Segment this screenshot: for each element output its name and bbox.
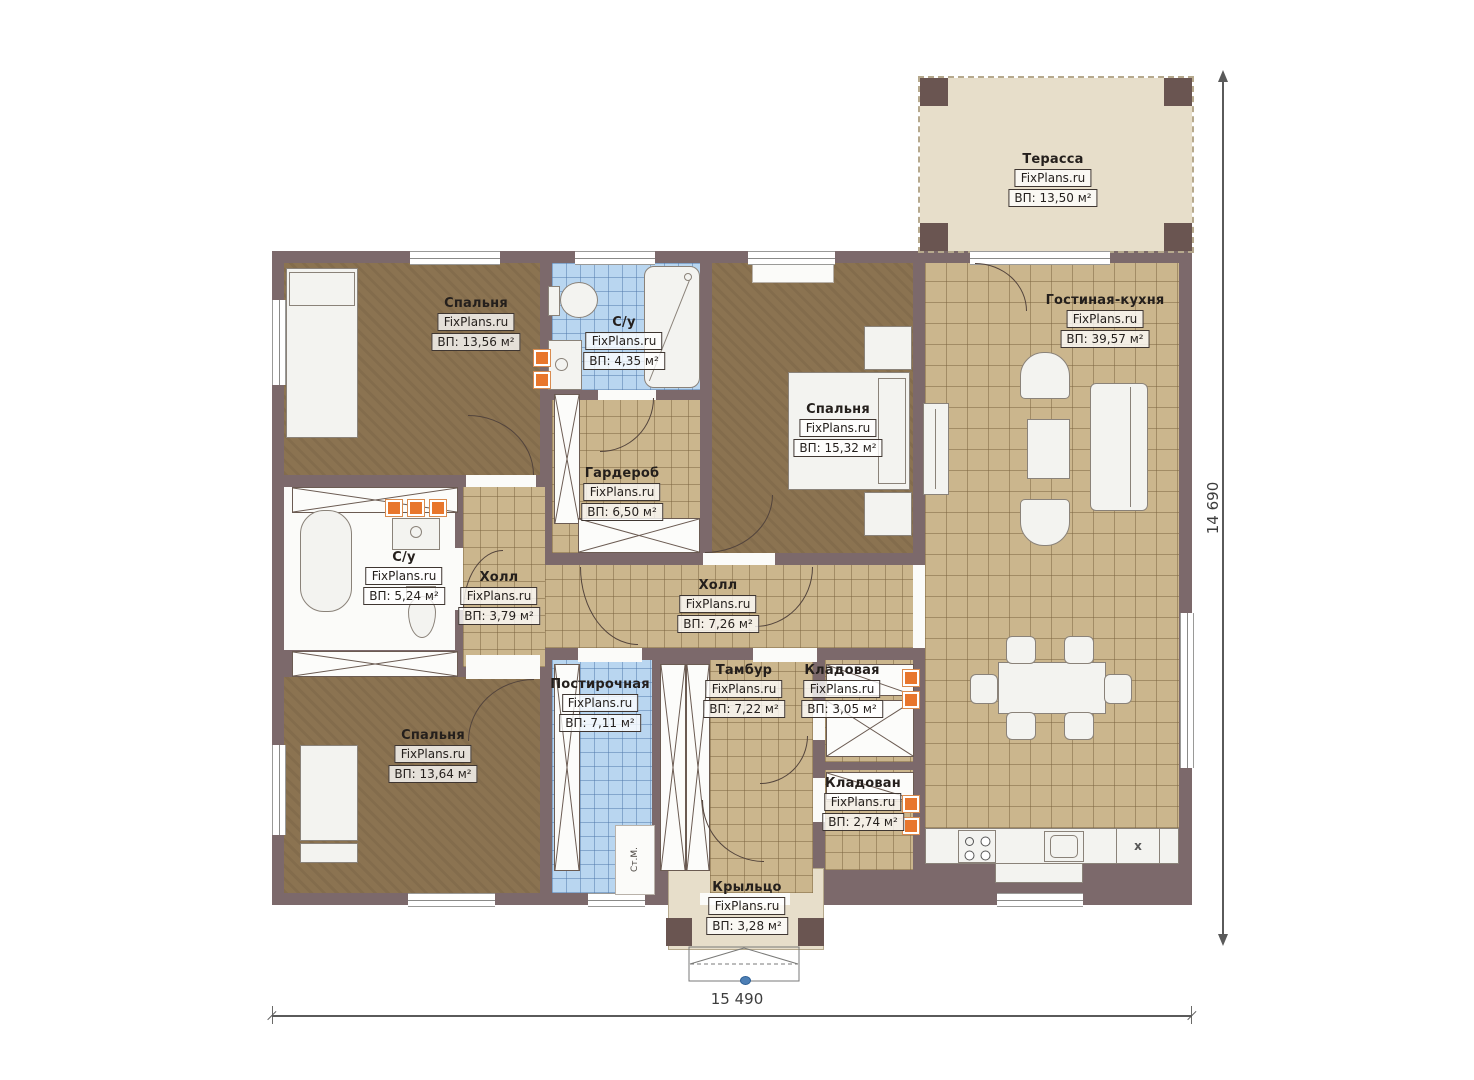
door-opening bbox=[703, 553, 775, 565]
vent-marker bbox=[408, 500, 424, 516]
room-label-terrace: Терасса FixPlans.ru ВП: 13,50 м² bbox=[1008, 152, 1097, 207]
watermark: FixPlans.ru bbox=[800, 419, 877, 437]
dimension-line-right bbox=[1222, 76, 1224, 940]
room-name: Спальня bbox=[431, 296, 520, 311]
toilet-tank bbox=[548, 286, 560, 316]
washbasin-drain bbox=[555, 358, 568, 371]
door-opening bbox=[913, 565, 925, 648]
room-area: ВП: 3,79 м² bbox=[458, 607, 540, 625]
porch-pillar bbox=[666, 918, 692, 946]
closet bbox=[660, 664, 686, 871]
stove bbox=[958, 830, 996, 863]
watermark: FixPlans.ru bbox=[825, 793, 902, 811]
room-area: ВП: 3,05 м² bbox=[801, 700, 883, 718]
room-name: Спальня bbox=[388, 728, 477, 743]
tv-stand bbox=[923, 403, 949, 495]
window bbox=[272, 745, 286, 835]
room-area: ВП: 2,74 м² bbox=[822, 813, 904, 831]
bed-foot bbox=[300, 843, 358, 863]
coffee-table bbox=[1027, 419, 1070, 479]
watermark: FixPlans.ru bbox=[1015, 169, 1092, 187]
chair bbox=[970, 674, 998, 704]
room-label-hall-small: Холл FixPlans.ru ВП: 3,79 м² bbox=[458, 570, 540, 625]
terrace-pillar bbox=[920, 223, 948, 251]
room-label-bedroom-bl: Спальня FixPlans.ru ВП: 13,64 м² bbox=[388, 728, 477, 783]
watermark: FixPlans.ru bbox=[562, 694, 639, 712]
room-area: ВП: 6,50 м² bbox=[581, 503, 663, 521]
armchair bbox=[1020, 499, 1070, 546]
terrace-sliding-door bbox=[970, 251, 1110, 265]
closet bbox=[292, 651, 458, 677]
washing-machine: Ст.М. bbox=[615, 825, 655, 895]
room-name: Гостиная-кухня bbox=[1046, 293, 1165, 308]
vent-marker bbox=[534, 372, 550, 388]
room-name: С/у bbox=[583, 315, 665, 330]
room-name: С/у bbox=[363, 550, 445, 565]
sink-basin bbox=[1050, 835, 1078, 858]
dining-table bbox=[998, 662, 1106, 714]
watermark: FixPlans.ru bbox=[804, 680, 881, 698]
watermark: FixPlans.ru bbox=[461, 587, 538, 605]
room-name: Терасса bbox=[1008, 152, 1097, 167]
counter-extension bbox=[995, 863, 1083, 883]
window bbox=[408, 893, 495, 907]
room-label-storage-2: Кладован FixPlans.ru ВП: 2,74 м² bbox=[822, 776, 904, 831]
door-opening bbox=[753, 648, 817, 662]
room-name: Гардероб bbox=[581, 466, 663, 481]
dimension-line-bottom bbox=[272, 1015, 1192, 1017]
room-area: ВП: 4,35 м² bbox=[583, 352, 665, 370]
watermark: FixPlans.ru bbox=[395, 745, 472, 763]
watermark: FixPlans.ru bbox=[709, 897, 786, 915]
door-opening bbox=[578, 648, 642, 662]
porch-pillar bbox=[798, 918, 824, 946]
room-area: ВП: 7,26 м² bbox=[677, 615, 759, 633]
watermark: FixPlans.ru bbox=[680, 595, 757, 613]
washbasin-drain bbox=[410, 526, 422, 538]
vent-marker bbox=[430, 500, 446, 516]
vent-marker bbox=[386, 500, 402, 516]
watermark: FixPlans.ru bbox=[366, 567, 443, 585]
fridge: x bbox=[1116, 828, 1160, 864]
room-label-hall-main: Холл FixPlans.ru ВП: 7,26 м² bbox=[677, 578, 759, 633]
dimension-arrow bbox=[1218, 70, 1228, 82]
room-name: Тамбур bbox=[703, 663, 785, 678]
room-label-bedroom-tl: Спальня FixPlans.ru ВП: 13,56 м² bbox=[431, 296, 520, 351]
window bbox=[410, 251, 500, 265]
window bbox=[1180, 613, 1194, 768]
chair bbox=[1064, 636, 1094, 664]
watermark: FixPlans.ru bbox=[586, 332, 663, 350]
fridge-label: x bbox=[1134, 839, 1142, 853]
terrace-pillar bbox=[1164, 223, 1192, 251]
vent-marker bbox=[903, 692, 919, 708]
washing-machine-label: Ст.М. bbox=[630, 847, 640, 872]
watermark: FixPlans.ru bbox=[584, 483, 661, 501]
room-area: ВП: 3,28 м² bbox=[706, 917, 788, 935]
room-label-laundry: Постирочная FixPlans.ru ВП: 7,11 м² bbox=[550, 677, 650, 732]
room-name: Кладован bbox=[822, 776, 904, 791]
room-label-porch: Крыльцо FixPlans.ru ВП: 3,28 м² bbox=[706, 880, 788, 935]
dimension-width: 15 490 bbox=[711, 990, 764, 1008]
armchair bbox=[1020, 352, 1070, 399]
room-name: Холл bbox=[677, 578, 759, 593]
room-label-wardrobe: Гардероб FixPlans.ru ВП: 6,50 м² bbox=[581, 466, 663, 521]
room-label-bath-left: С/у FixPlans.ru ВП: 5,24 м² bbox=[363, 550, 445, 605]
room-area: ВП: 13,56 м² bbox=[431, 333, 520, 351]
dimension-height: 14 690 bbox=[1204, 482, 1222, 535]
terrace-pillar bbox=[920, 78, 948, 106]
drain bbox=[684, 273, 692, 281]
window bbox=[748, 251, 835, 265]
nightstand bbox=[864, 326, 912, 370]
vent-marker bbox=[903, 796, 919, 812]
bed-pillow bbox=[289, 272, 355, 306]
chair bbox=[1006, 636, 1036, 664]
room-area: ВП: 15,32 м² bbox=[793, 439, 882, 457]
room-area: ВП: 39,57 м² bbox=[1060, 330, 1149, 348]
sofa bbox=[1090, 383, 1148, 511]
closet bbox=[554, 394, 580, 524]
terrace-pillar bbox=[1164, 78, 1192, 106]
window bbox=[588, 893, 645, 907]
window bbox=[272, 300, 286, 385]
room-area: ВП: 7,11 м² bbox=[559, 714, 641, 732]
chair bbox=[1006, 712, 1036, 740]
watermark: FixPlans.ru bbox=[438, 313, 515, 331]
vent-marker bbox=[903, 670, 919, 686]
bathtub bbox=[300, 510, 352, 612]
nightstand bbox=[864, 492, 912, 536]
dimension-arrow bbox=[1218, 934, 1228, 946]
door-opening bbox=[466, 475, 536, 487]
room-area: ВП: 13,50 м² bbox=[1008, 189, 1097, 207]
watermark: FixPlans.ru bbox=[1067, 310, 1144, 328]
room-name: Крыльцо bbox=[706, 880, 788, 895]
chair bbox=[1104, 674, 1132, 704]
watermark: FixPlans.ru bbox=[706, 680, 783, 698]
room-area: ВП: 5,24 м² bbox=[363, 587, 445, 605]
window bbox=[997, 893, 1083, 907]
vent-marker bbox=[534, 350, 550, 366]
window bbox=[575, 251, 655, 265]
floor-plan: x Ст.М. Терасса FixPlans.ru ВП: 13,50 м²… bbox=[0, 0, 1474, 1080]
room-name: Постирочная bbox=[550, 677, 650, 692]
room-name: Спальня bbox=[793, 402, 882, 417]
room-area: ВП: 7,22 м² bbox=[703, 700, 785, 718]
closet bbox=[578, 518, 700, 553]
room-name: Холл bbox=[458, 570, 540, 585]
survey-point bbox=[740, 976, 751, 985]
room-label-storage-1: Кладовая FixPlans.ru ВП: 3,05 м² bbox=[801, 663, 883, 718]
room-area: ВП: 13,64 м² bbox=[388, 765, 477, 783]
room-label-bath-top: С/у FixPlans.ru ВП: 4,35 м² bbox=[583, 315, 665, 370]
room-label-bedroom-right: Спальня FixPlans.ru ВП: 15,32 м² bbox=[793, 402, 882, 457]
vent-marker bbox=[903, 818, 919, 834]
chair bbox=[1064, 712, 1094, 740]
toilet bbox=[560, 282, 598, 318]
room-label-vestibule: Тамбур FixPlans.ru ВП: 7,22 м² bbox=[703, 663, 785, 718]
window-sill bbox=[752, 263, 834, 283]
room-label-living-kitchen: Гостиная-кухня FixPlans.ru ВП: 39,57 м² bbox=[1046, 293, 1165, 348]
door-opening bbox=[466, 655, 540, 679]
bed bbox=[300, 745, 358, 841]
room-name: Кладовая bbox=[801, 663, 883, 678]
